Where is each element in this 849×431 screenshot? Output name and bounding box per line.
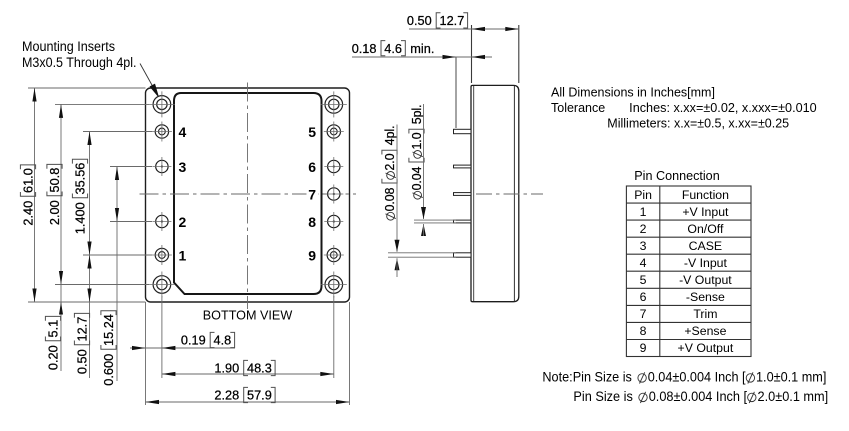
svg-text:2: 2 bbox=[640, 222, 647, 236]
svg-text:61.0: 61.0 bbox=[21, 168, 36, 193]
svg-text:4.6: 4.6 bbox=[384, 41, 402, 56]
svg-text:4: 4 bbox=[179, 124, 187, 140]
svg-text:All Dimensions in Inches[mm]: All Dimensions in Inches[mm] bbox=[551, 85, 715, 99]
svg-text:Tolerance: Tolerance bbox=[551, 101, 605, 115]
svg-text:0.04: 0.04 bbox=[410, 167, 424, 191]
svg-text:+Sense: +Sense bbox=[684, 324, 726, 338]
svg-text:1: 1 bbox=[179, 247, 187, 263]
svg-text:1.0±0.1 mm]: 1.0±0.1 mm] bbox=[756, 369, 826, 385]
svg-text:+V Input: +V Input bbox=[682, 205, 729, 219]
svg-text:15.24: 15.24 bbox=[101, 314, 116, 346]
svg-text:0.19: 0.19 bbox=[181, 333, 206, 348]
svg-text:2.40: 2.40 bbox=[21, 201, 36, 226]
svg-text:Pin: Pin bbox=[634, 188, 652, 202]
svg-text:0.04±0.004 Inch [: 0.04±0.004 Inch [ bbox=[648, 369, 746, 385]
svg-text:0.08±0.004 Inch [: 0.08±0.004 Inch [ bbox=[649, 388, 747, 404]
svg-text:0.08: 0.08 bbox=[383, 188, 397, 212]
svg-text:35.56: 35.56 bbox=[73, 163, 88, 195]
svg-text:6: 6 bbox=[308, 159, 316, 175]
svg-text:12.7: 12.7 bbox=[440, 13, 465, 28]
svg-text:5pl.: 5pl. bbox=[410, 104, 424, 124]
svg-text:+V Output: +V Output bbox=[678, 341, 734, 355]
svg-text:2.28: 2.28 bbox=[214, 388, 239, 403]
svg-text:On/Off: On/Off bbox=[687, 222, 724, 236]
svg-text:Note:Pin Size is: Note:Pin Size is bbox=[542, 369, 632, 385]
svg-text:48.3: 48.3 bbox=[247, 361, 272, 376]
svg-text:0.18: 0.18 bbox=[352, 41, 377, 56]
svg-text:7: 7 bbox=[640, 307, 647, 321]
svg-text:Mounting Inserts: Mounting Inserts bbox=[22, 39, 115, 54]
svg-text:0.50: 0.50 bbox=[407, 13, 432, 28]
svg-text:1.0: 1.0 bbox=[410, 132, 424, 149]
svg-text:Millimeters: x.x=±0.5, x.xx=±0: Millimeters: x.x=±0.5, x.xx=±0.25 bbox=[607, 117, 789, 131]
svg-text:1.400: 1.400 bbox=[73, 202, 88, 234]
svg-text:2.0±0.1 mm]: 2.0±0.1 mm] bbox=[758, 388, 829, 404]
svg-text:5.1: 5.1 bbox=[46, 320, 61, 338]
svg-text:8: 8 bbox=[640, 324, 647, 338]
svg-text:9: 9 bbox=[308, 247, 316, 263]
svg-text:4.8: 4.8 bbox=[214, 333, 232, 348]
svg-text:1: 1 bbox=[640, 205, 647, 219]
svg-text:4: 4 bbox=[640, 256, 647, 270]
svg-text:Pin Connection: Pin Connection bbox=[634, 169, 719, 183]
svg-text:2.00: 2.00 bbox=[47, 200, 62, 225]
svg-text:BOTTOM VIEW: BOTTOM VIEW bbox=[203, 307, 293, 322]
svg-text:0.20: 0.20 bbox=[46, 345, 61, 370]
svg-text:8: 8 bbox=[308, 214, 316, 230]
svg-text:Inches: x.xx=±0.02, x.xxx=±0.0: Inches: x.xx=±0.02, x.xxx=±0.010 bbox=[629, 101, 817, 115]
svg-text:M3x0.5 Through 4pl.: M3x0.5 Through 4pl. bbox=[22, 55, 137, 70]
svg-text:3: 3 bbox=[179, 159, 187, 175]
svg-text:4pl.: 4pl. bbox=[383, 125, 397, 145]
svg-text:7: 7 bbox=[308, 186, 316, 202]
svg-text:2.0: 2.0 bbox=[383, 153, 397, 170]
svg-text:12.7: 12.7 bbox=[75, 317, 90, 342]
svg-text:2: 2 bbox=[179, 214, 187, 230]
svg-text:50.8: 50.8 bbox=[47, 168, 62, 193]
svg-text:6: 6 bbox=[640, 290, 647, 304]
svg-text:CASE: CASE bbox=[689, 239, 723, 253]
svg-text:5: 5 bbox=[308, 124, 316, 140]
svg-text:-V Input: -V Input bbox=[684, 256, 728, 270]
svg-text:0.50: 0.50 bbox=[75, 349, 90, 374]
svg-text:min.: min. bbox=[410, 41, 434, 56]
svg-text:9: 9 bbox=[640, 341, 647, 355]
svg-text:1.90: 1.90 bbox=[214, 361, 239, 376]
svg-text:3: 3 bbox=[640, 239, 647, 253]
svg-text:Function: Function bbox=[682, 188, 729, 202]
svg-text:Trim: Trim bbox=[693, 307, 717, 321]
svg-text:5: 5 bbox=[640, 273, 647, 287]
svg-text:-Sense: -Sense bbox=[686, 290, 725, 304]
svg-text:57.9: 57.9 bbox=[247, 388, 272, 403]
svg-text:-V Output: -V Output bbox=[679, 273, 732, 287]
svg-text:Pin Size is: Pin Size is bbox=[573, 388, 633, 404]
svg-text:0.600: 0.600 bbox=[101, 354, 116, 386]
